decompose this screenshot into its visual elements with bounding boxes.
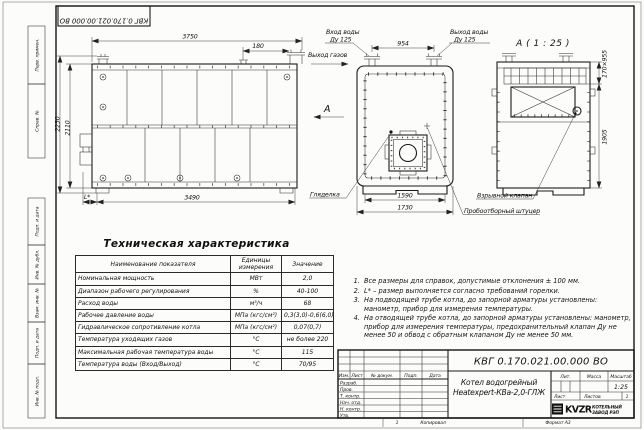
- side-view: 3750 180 2230 2110 3490 L*: [55, 34, 306, 206]
- svg-text:Выход воды: Выход воды: [450, 29, 488, 36]
- tb-col: Подп.: [404, 373, 417, 379]
- tb-row: Утв.: [340, 413, 349, 419]
- cross-braced-window: [511, 87, 575, 117]
- dim-2110: 2110: [65, 120, 72, 135]
- spec-table: Наименование показателя Единицы измерени…: [75, 255, 334, 371]
- note-item: L* – размер выполняется согласно требова…: [362, 287, 633, 295]
- dim-2230: 2230: [55, 116, 62, 131]
- margin-column: Перв. примен. Справ. № Подп. и дата Инв.…: [28, 26, 45, 418]
- spec-header-cell: Значение: [282, 256, 334, 273]
- water-inlet-nozzle: [364, 54, 380, 67]
- svg-text:Вход воды: Вход воды: [326, 29, 360, 36]
- front-view: 954 1590 1730 Вход воды Ду 125 Выход вод…: [308, 29, 490, 215]
- margin-label: Подп. и дата: [35, 328, 41, 358]
- copied-label: Копировал: [420, 420, 446, 426]
- kvzr-logo: KVZR КОТЕЛЬНЫЙ ЗАВОД РЭП: [552, 404, 622, 416]
- tb-row: Разраб.: [340, 380, 357, 386]
- scale-label: Масштаб: [610, 374, 631, 380]
- spec-header-cell: Наименование показателя: [76, 256, 231, 273]
- spec-header-cell: Единицы измерения: [231, 256, 282, 273]
- product-name-line1: Котел водогрейный: [461, 378, 538, 387]
- dim-170x955: 170×955: [602, 50, 609, 78]
- tb-col: Дата: [428, 373, 441, 379]
- dim-954: 954: [397, 41, 409, 48]
- sheet-label: Лист: [553, 394, 566, 400]
- tb-col: № докум.: [370, 373, 393, 379]
- title-block: Изм. Лист № докум. Подп. Дата Разраб. Пр…: [338, 350, 634, 419]
- explosion-valve-label: Взрывной клапан: [476, 112, 577, 199]
- page-mark: 1: [396, 420, 399, 426]
- spec-row: Гидравлическое сопротивление котла МПа (…: [76, 322, 334, 334]
- sampling-fitting-label: Пробоотборный штуцер: [428, 128, 541, 215]
- rotated-doc-number: КВГ 0.170.021.00.000 ВО: [59, 17, 148, 25]
- sight-glass-label: Гляделка: [309, 133, 391, 199]
- dim-1590: 1590: [397, 193, 412, 200]
- logo-caption-1: КОТЕЛЬНЫЙ: [592, 405, 622, 410]
- margin-label: Справ. №: [35, 110, 41, 132]
- dim-3490: 3490: [184, 195, 199, 202]
- svg-text:Выход газов: Выход газов: [308, 52, 348, 59]
- note-item: На подводящей трубе котла, до запорной а…: [362, 296, 633, 312]
- spec-row: Рабочее давление воды МПа (кгс/см²) 0,3(…: [76, 309, 334, 321]
- tb-row: Т. контр.: [340, 393, 360, 399]
- svg-text:Ду 125: Ду 125: [329, 37, 352, 44]
- dim-1905: 1905: [602, 129, 609, 144]
- sheets-label: Листов: [583, 394, 601, 400]
- spec-table-title: Техническая характеристика: [75, 238, 318, 250]
- burner-flange: [385, 131, 431, 175]
- spec-row: Температура уходящих газов °С не более 2…: [76, 334, 334, 346]
- view-direction-marker: А: [314, 104, 344, 117]
- spec-row: Диапазон рабочего регулирования % 40-100: [76, 285, 334, 297]
- spec-row: Температура воды (Вход/Выход) °С 70/95: [76, 358, 334, 370]
- spec-row: Номинальная мощность МВт 2,0: [76, 273, 334, 285]
- flue-collector: [504, 68, 586, 84]
- margin-label: Инв. № дубл.: [35, 249, 41, 279]
- section-view-title: А ( 1 : 25 ): [515, 39, 570, 49]
- tb-row: Пров.: [340, 387, 353, 393]
- dim-1730: 1730: [397, 205, 412, 212]
- format-label: Формат А3: [545, 420, 570, 426]
- sheets-value: 1: [626, 394, 629, 400]
- spec-row: Максимальная рабочая температура воды °С…: [76, 346, 334, 358]
- bottom-strip: 1 Копировал Формат А3: [383, 418, 571, 427]
- tb-row: Нач. отд.: [340, 400, 361, 406]
- margin-label: Инв. № подл.: [35, 376, 41, 406]
- logo-text: KVZR: [565, 405, 593, 416]
- scale-value: 1:25: [614, 384, 628, 391]
- margin-label: Взам. инв. №: [35, 288, 41, 318]
- dim-180: 180: [252, 43, 264, 50]
- dim-burner-L: L*: [84, 194, 90, 201]
- chimney-stub: [287, 50, 305, 65]
- drawing-sheet: Перв. примен. Справ. № Подп. и дата Инв.…: [0, 0, 644, 430]
- spec-header-row: Наименование показателя Единицы измерени…: [76, 256, 334, 273]
- gas-outlet-label: Выход газов: [308, 52, 348, 64]
- note-item: Все размеры для справок, допустимые откл…: [362, 277, 633, 285]
- tb-col: Изм.: [339, 373, 349, 379]
- spec-table-block: Техническая характеристика Наименование …: [75, 238, 318, 371]
- top-fitting: [97, 54, 109, 64]
- margin-label: Перв. примен.: [35, 39, 41, 72]
- product-name-line2: Heatexpert-КВа-2,0-ГЛЖ: [453, 388, 546, 397]
- lit-label: Лит.: [559, 374, 570, 380]
- logo-caption-2: ЗАВОД РЭП: [592, 410, 619, 415]
- spec-row: Расход воды м³/ч 68: [76, 297, 334, 309]
- rotated-doc-stamp: КВГ 0.170.021.00.000 ВО: [58, 6, 150, 26]
- dim-3750: 3750: [182, 34, 197, 41]
- svg-text:А: А: [323, 104, 331, 115]
- mass-label: Масса: [587, 374, 601, 380]
- svg-text:Ду 125: Ду 125: [453, 37, 476, 44]
- section-view: А ( 1 : 25 ) 170×955 1905: [428, 39, 609, 215]
- svg-text:Взрывной клапан: Взрывной клапан: [477, 193, 532, 200]
- notes-block: Все размеры для справок, допустимые откл…: [349, 277, 633, 341]
- doc-number: КВГ 0.170.021.00.000 ВО: [474, 357, 608, 368]
- bolt-icon: [100, 74, 290, 181]
- margin-label: Подп. и дата: [35, 206, 41, 236]
- note-item: На отводящей трубе котла, до запорной ар…: [362, 314, 633, 339]
- tb-col: Лист: [350, 373, 363, 379]
- water-outlet-nozzle: [426, 54, 442, 67]
- water-outlet-label: Выход воды Ду 125: [437, 29, 490, 56]
- svg-text:Пробоотборный штуцер: Пробоотборный штуцер: [464, 207, 540, 215]
- tb-row: Н. контр.: [340, 406, 361, 412]
- svg-text:Гляделка: Гляделка: [310, 192, 340, 199]
